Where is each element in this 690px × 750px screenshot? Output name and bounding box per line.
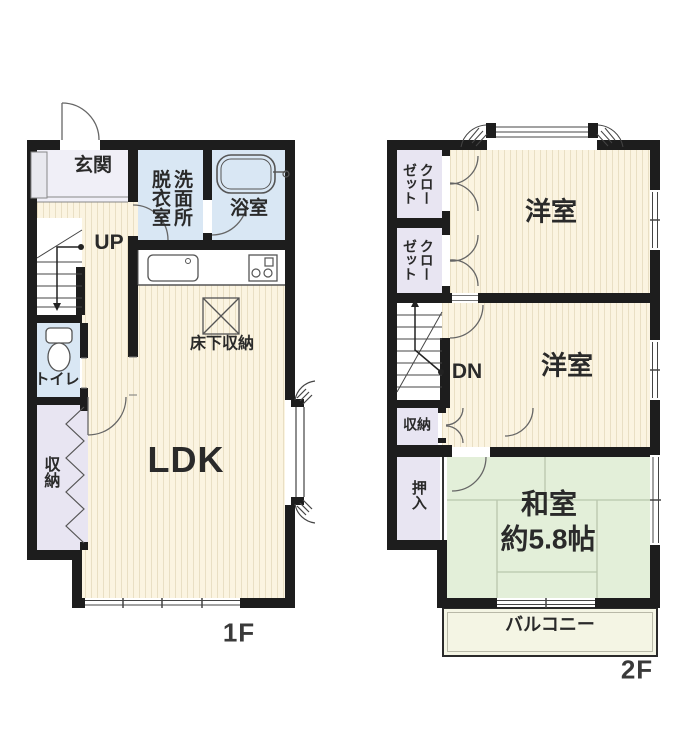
room-label-oshiire: 押入 xyxy=(410,480,426,510)
room-label-storage-1f: 収納 xyxy=(41,456,58,488)
kitchen-sink-icon xyxy=(148,255,198,281)
western-room2-door xyxy=(505,408,533,436)
label-underfloor-storage: 床下収納 xyxy=(190,337,254,354)
washroom-col-senmen: 洗面所 xyxy=(171,170,191,227)
opening-ticks xyxy=(81,296,478,396)
closet1-col-left: ゼット xyxy=(402,163,417,205)
stairs-2f xyxy=(397,299,444,392)
closet1-col-right: クロー xyxy=(419,163,434,205)
stove-icon xyxy=(249,255,277,281)
closet1-door-b xyxy=(450,183,478,211)
window-bottom-2f xyxy=(497,598,595,608)
bathtub-icon xyxy=(217,155,289,193)
floor-label-1f: 1F xyxy=(223,619,255,646)
underfloor-storage-icon xyxy=(203,298,239,334)
washroom-col-datsui: 脱衣室 xyxy=(149,170,169,227)
closet2-col-right: クロー xyxy=(419,239,434,281)
room-label-storage-2f: 収納 xyxy=(403,418,431,433)
room-label-western2: 洋室 xyxy=(541,352,593,379)
room-label-washroom: 脱衣室 洗面所 xyxy=(149,170,191,227)
toilet-icon xyxy=(46,328,72,371)
room-label-ldk: LDK xyxy=(148,441,225,479)
room-label-bath: 浴室 xyxy=(230,199,268,219)
ldk-door xyxy=(88,397,126,435)
room-label-toilet: トイレ xyxy=(34,372,79,388)
room-label-western1: 洋室 xyxy=(525,198,577,225)
floor-label-2f: 2F xyxy=(621,656,653,683)
room-label-closet2: ゼット クロー xyxy=(402,239,433,281)
closet2-door-b xyxy=(450,260,478,286)
window-bottom-1f xyxy=(85,598,240,608)
closet2-col-left: ゼット xyxy=(402,239,417,281)
room-label-japanese: 和室 xyxy=(521,489,577,518)
entrance-door xyxy=(62,103,99,140)
floorplan-canvas: 玄関 脱衣室 洗面所 浴室 UP トイレ 収納 LDK 床下収納 1F ゼット … xyxy=(0,0,690,750)
room-label-balcony: バルコニー xyxy=(505,616,595,635)
stairs-up-label: UP xyxy=(94,232,123,254)
storage2f-door-a xyxy=(446,408,463,425)
japanese-room-door xyxy=(452,457,486,491)
closet-folding-door-icon xyxy=(66,407,84,543)
room-label-japanese-size: 約5.8帖 xyxy=(501,524,596,553)
storage2f-door-b xyxy=(446,426,463,443)
room-label-closet1: ゼット クロー xyxy=(402,163,433,205)
windows-right-2f xyxy=(650,192,661,543)
closet2-door-a xyxy=(450,235,478,261)
closet1-door-a xyxy=(450,156,478,184)
room-label-genkan: 玄関 xyxy=(74,156,112,176)
stair-hall-door-2f xyxy=(450,305,483,338)
stairs-down-label: DN xyxy=(452,361,482,383)
